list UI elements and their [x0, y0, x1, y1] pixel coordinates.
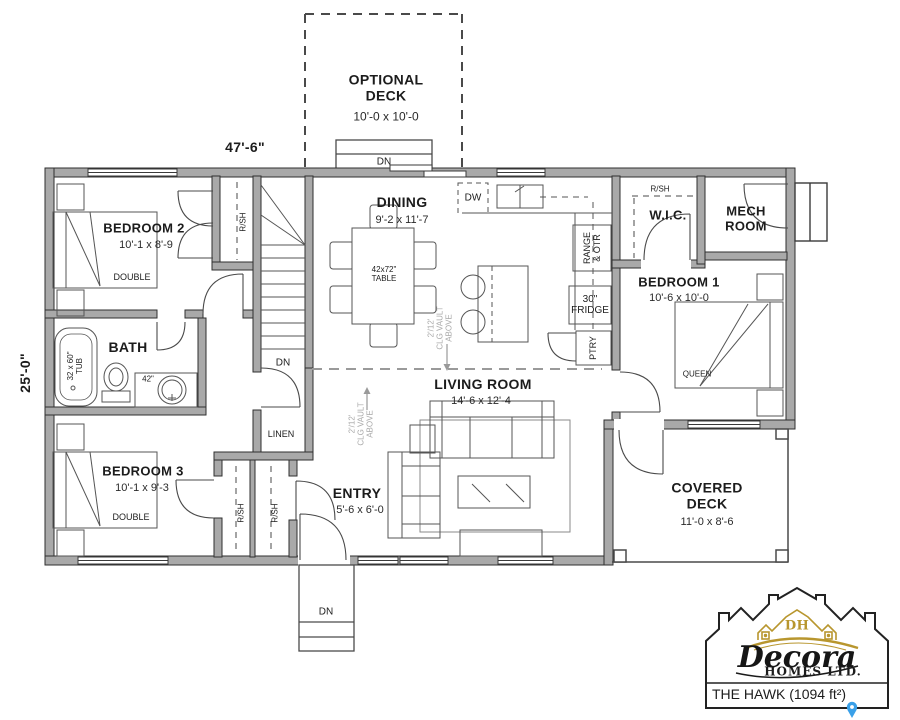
vanity-size-label: 42" — [142, 376, 154, 385]
media-console — [460, 530, 542, 556]
floor-plan-page: 47'-6" 25'-0" OPTIONAL DECK 10'-0 x 10'-… — [0, 0, 900, 720]
bedroom2-bed-label: DOUBLE — [113, 272, 150, 282]
coffee-table — [458, 476, 530, 508]
fridge-label: 30" FRIDGE — [569, 294, 611, 316]
wic-label: W.I.C. — [649, 209, 686, 224]
overall-width-dimension: 47'-6" — [225, 140, 265, 156]
stairs-dn-label: DN — [276, 357, 290, 368]
location-pin-icon — [847, 702, 857, 718]
toilet — [102, 363, 130, 402]
logo-monogram: DH — [785, 620, 809, 635]
deck-steps-dn-label: DN — [377, 156, 391, 167]
covered-deck-dims: 11'-0 x 8'-6 — [681, 516, 734, 528]
side-table — [410, 425, 435, 453]
bedroom1-bed-label: QUEEN — [683, 371, 711, 380]
dining-table-label: 42x72" TABLE — [368, 266, 400, 284]
bedroom3-closet-rsh-label: R/SH — [238, 503, 247, 522]
pantry-label: PTRY — [588, 336, 598, 360]
mech-room-label: MECH ROOM — [717, 204, 775, 233]
dining-dims: 9'-2 x 11'-7 — [376, 214, 429, 226]
plan-model-label: THE HAWK (1094 ft²) — [712, 687, 846, 703]
bedroom3-bed-label: DOUBLE — [112, 512, 149, 522]
bedroom2-label: BEDROOM 2 — [103, 222, 184, 237]
vault-note-b: 2'/12' CLG VAULT ABOVE — [349, 402, 376, 445]
bedroom3-label: BEDROOM 3 — [102, 465, 183, 480]
optional-deck-dims: 10'-0 x 10'-0 — [353, 110, 418, 123]
range-label: RANGE & OTR — [582, 229, 602, 267]
entry-dims: 5'-6 x 6'-0 — [336, 504, 384, 516]
dishwasher-label: DW — [465, 192, 482, 203]
kitchen-sink — [497, 185, 543, 208]
floor-plan-drawing — [0, 0, 900, 720]
dining-label: DINING — [377, 195, 428, 211]
tub-label: 32 x 60" TUB — [67, 348, 85, 384]
linen-label: LINEN — [268, 429, 295, 439]
bedroom2-closet-rsh-label: R/SH — [240, 212, 249, 231]
optional-deck-label: OPTIONAL DECK — [343, 72, 429, 103]
wic-rsh-label: R/SH — [650, 186, 669, 195]
entry-closet-rsh-label: R/SH — [272, 503, 281, 522]
covered-deck-label: COVERED DECK — [666, 480, 748, 511]
entry-label: ENTRY — [333, 486, 381, 502]
bedroom2-dims: 10'-1 x 8'-9 — [119, 239, 173, 251]
bedroom1-dims: 10'-6 x 10'-0 — [649, 292, 709, 304]
living-furniture — [388, 401, 570, 556]
island — [461, 266, 528, 342]
bedroom3-dims: 10'-1 x 9'-3 — [115, 482, 169, 494]
living-room-dims: 14'-6 x 12'-4 — [451, 395, 511, 407]
entry-steps-dn-label: DN — [319, 606, 333, 617]
stairs — [261, 185, 305, 349]
bedroom1-label: BEDROOM 1 — [638, 276, 719, 291]
vault-note-a: 2'/12' CLG VAULT ABOVE — [428, 306, 455, 349]
mech-bumpout — [795, 183, 827, 241]
overall-height-dimension: 25'-0" — [18, 353, 34, 393]
logo-subtitle: HOMES LTD. — [764, 665, 862, 678]
bath-label: BATH — [108, 340, 147, 356]
loveseat — [388, 452, 440, 538]
living-room-label: LIVING ROOM — [434, 377, 531, 393]
sofa — [430, 401, 554, 458]
